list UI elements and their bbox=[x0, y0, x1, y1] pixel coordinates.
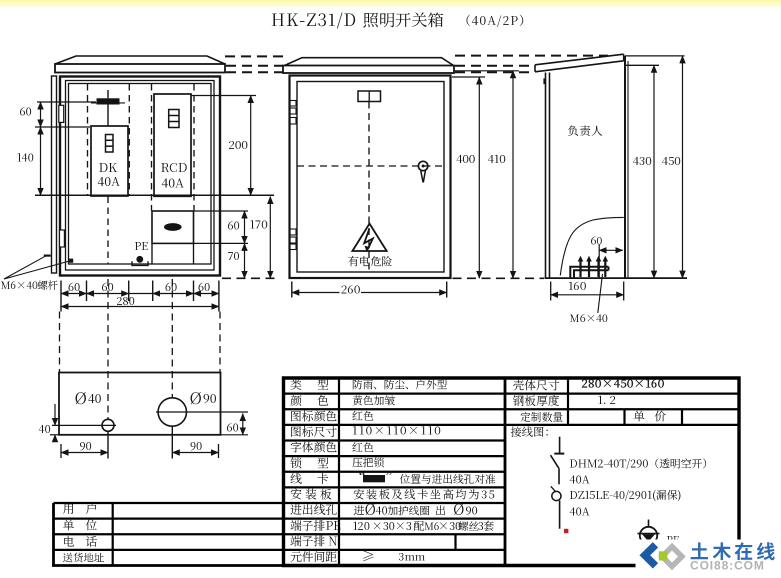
svg-text:160: 160 bbox=[568, 278, 586, 294]
svg-text:字体颜色: 字体颜色 bbox=[290, 439, 337, 456]
svg-text:Ø: Ø bbox=[190, 386, 202, 409]
svg-text:红色: 红色 bbox=[352, 439, 374, 455]
svg-text:负责人: 负责人 bbox=[568, 123, 604, 139]
svg-text:40: 40 bbox=[376, 503, 388, 519]
svg-text:430: 430 bbox=[633, 153, 652, 169]
svg-text:60: 60 bbox=[68, 279, 80, 295]
svg-text:电: 电 bbox=[63, 533, 75, 550]
svg-text:话: 话 bbox=[86, 533, 98, 550]
svg-text:120×30×3配M6×30螺丝3套: 120×30×3配M6×30螺丝3套 bbox=[353, 518, 495, 534]
svg-text:图标颜色: 图标颜色 bbox=[290, 408, 337, 425]
svg-text:装: 装 bbox=[305, 486, 317, 503]
svg-text:单: 单 bbox=[63, 517, 75, 534]
svg-text:线: 线 bbox=[290, 470, 302, 487]
svg-text:端子排 N: 端子排 N bbox=[290, 533, 338, 550]
svg-text:M6×40: M6×40 bbox=[569, 311, 608, 326]
svg-text:黄色加皱: 黄色加皱 bbox=[352, 393, 395, 408]
svg-text:PE: PE bbox=[135, 239, 150, 254]
svg-text:类: 类 bbox=[290, 376, 302, 393]
svg-text:防雨、防尘、户外型: 防雨、防尘、户外型 bbox=[352, 378, 448, 393]
svg-text:用: 用 bbox=[63, 500, 75, 517]
svg-text:出: 出 bbox=[435, 503, 446, 519]
svg-text:200: 200 bbox=[229, 137, 248, 153]
svg-text:280: 280 bbox=[117, 293, 135, 309]
svg-text:60: 60 bbox=[20, 104, 32, 120]
svg-text:加护线圈: 加护线圈 bbox=[388, 504, 431, 519]
svg-text:价: 价 bbox=[655, 407, 667, 424]
svg-text:90: 90 bbox=[80, 438, 92, 454]
svg-text:70: 70 bbox=[228, 248, 240, 264]
svg-text:位: 位 bbox=[86, 517, 98, 534]
svg-text:40: 40 bbox=[39, 421, 51, 437]
svg-text:安: 安 bbox=[290, 486, 302, 503]
svg-text:140: 140 bbox=[17, 150, 34, 166]
svg-text:端子排PE: 端子排PE bbox=[290, 517, 341, 534]
svg-text:40: 40 bbox=[88, 390, 102, 407]
svg-text:定制数量: 定制数量 bbox=[520, 410, 563, 425]
svg-text:钢板厚度: 钢板厚度 bbox=[513, 392, 560, 409]
svg-text:400: 400 bbox=[456, 151, 475, 167]
svg-text:DHM2-40T/290（透明空开）: DHM2-40T/290（透明空开） bbox=[570, 456, 714, 471]
svg-text:90: 90 bbox=[203, 390, 217, 407]
svg-text:DZ15LE-40/2901(漏保): DZ15LE-40/2901(漏保) bbox=[570, 488, 682, 503]
svg-text:颜: 颜 bbox=[290, 392, 302, 409]
svg-text:锁: 锁 bbox=[290, 454, 302, 471]
svg-text:40A: 40A bbox=[162, 174, 185, 192]
svg-text:位置与进出线孔对准: 位置与进出线孔对准 bbox=[400, 472, 497, 487]
svg-text:（40A/2P）: （40A/2P） bbox=[459, 12, 533, 29]
svg-text:单: 单 bbox=[633, 407, 645, 424]
svg-text:60: 60 bbox=[228, 218, 240, 234]
svg-text:Ø: Ø bbox=[75, 386, 87, 409]
svg-text:90: 90 bbox=[190, 438, 202, 454]
svg-text:260: 260 bbox=[341, 281, 360, 297]
svg-text:卡: 卡 bbox=[317, 470, 329, 487]
svg-text:型: 型 bbox=[317, 454, 329, 471]
svg-text:接线图：: 接线图： bbox=[511, 424, 556, 440]
svg-text:≥: ≥ bbox=[362, 545, 376, 565]
svg-text:1. 2: 1. 2 bbox=[598, 392, 617, 408]
svg-text:有电危险: 有电危险 bbox=[348, 253, 393, 269]
svg-text:户: 户 bbox=[86, 500, 98, 517]
svg-text:图标尺寸: 图标尺寸 bbox=[290, 423, 337, 440]
svg-text:照明开关箱: 照明开关箱 bbox=[363, 7, 445, 31]
svg-text:进出线孔: 进出线孔 bbox=[290, 501, 337, 518]
svg-text:110×110×110: 110×110×110 bbox=[352, 422, 442, 438]
svg-text:450: 450 bbox=[662, 153, 681, 169]
svg-text:HK-Z31/D: HK-Z31/D bbox=[271, 7, 358, 31]
svg-text:3mm: 3mm bbox=[399, 550, 425, 565]
svg-text:60: 60 bbox=[591, 233, 603, 248]
svg-text:COI88:COM: COI88:COM bbox=[690, 559, 765, 573]
svg-text:送货地址: 送货地址 bbox=[63, 549, 105, 564]
svg-text:”: ” bbox=[386, 468, 400, 488]
svg-text:60: 60 bbox=[198, 279, 210, 295]
svg-text:40A: 40A bbox=[98, 172, 121, 190]
svg-text:60: 60 bbox=[227, 420, 239, 436]
svg-text:壳体尺寸: 壳体尺寸 bbox=[513, 376, 560, 393]
svg-text:40A: 40A bbox=[570, 472, 590, 488]
svg-text:型: 型 bbox=[317, 376, 329, 393]
svg-text:280×450×160: 280×450×160 bbox=[582, 376, 665, 392]
svg-text:60: 60 bbox=[165, 279, 177, 295]
svg-text:410: 410 bbox=[488, 151, 506, 167]
svg-text:90: 90 bbox=[466, 503, 478, 519]
svg-text:170: 170 bbox=[250, 217, 268, 233]
svg-text:40A: 40A bbox=[570, 504, 590, 520]
svg-text:色: 色 bbox=[317, 392, 329, 409]
svg-text:M6×40螺杆: M6×40螺杆 bbox=[1, 277, 59, 292]
svg-text:元件间距: 元件间距 bbox=[290, 548, 337, 565]
svg-text:板: 板 bbox=[320, 486, 332, 503]
